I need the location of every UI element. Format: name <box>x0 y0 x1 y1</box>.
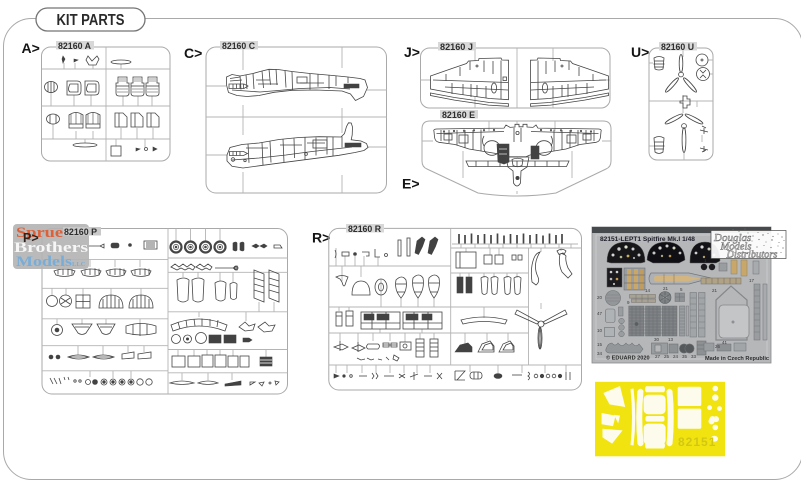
svg-text:LLC: LLC <box>72 261 86 268</box>
svg-text:82160 C: 82160 C <box>222 41 255 51</box>
svg-text:82160 A: 82160 A <box>58 41 91 51</box>
svg-text:15: 15 <box>597 342 603 347</box>
svg-text:24: 24 <box>673 354 679 359</box>
svg-text:41: 41 <box>722 340 728 345</box>
svg-text:Made in Czech Republic: Made in Czech Republic <box>705 356 769 362</box>
svg-text:30: 30 <box>654 337 660 342</box>
svg-text:© EDUARD 2020: © EDUARD 2020 <box>606 355 650 362</box>
svg-text:C>: C> <box>184 45 202 61</box>
svg-text:82151: 82151 <box>678 435 716 449</box>
svg-text:17: 17 <box>749 278 755 283</box>
svg-text:82160 R: 82160 R <box>348 224 381 234</box>
svg-text:35: 35 <box>682 354 688 359</box>
svg-text:21: 21 <box>663 286 669 291</box>
svg-text:33: 33 <box>691 354 697 359</box>
svg-text:27: 27 <box>655 354 661 359</box>
svg-text:E>: E> <box>402 176 420 192</box>
svg-text:J>: J> <box>404 44 420 60</box>
svg-text:13: 13 <box>668 337 674 342</box>
svg-text:A>: A> <box>22 40 40 56</box>
svg-text:47: 47 <box>597 311 603 316</box>
svg-text:Models: Models <box>16 254 72 270</box>
svg-text:82160 U: 82160 U <box>661 42 694 52</box>
svg-text:21: 21 <box>712 288 718 293</box>
svg-text:Distributors: Distributors <box>726 250 778 261</box>
svg-text:14: 14 <box>645 288 651 293</box>
svg-text:82160 J: 82160 J <box>440 42 473 52</box>
svg-text:20: 20 <box>597 295 603 300</box>
svg-text:34: 34 <box>597 351 603 356</box>
svg-text:U>: U> <box>631 44 649 60</box>
svg-text:KIT PARTS: KIT PARTS <box>57 12 125 29</box>
svg-text:82151-LEPT1 Spitfire Mk.I 1/: 82151-LEPT1 Spitfire Mk.I 1/48 <box>600 236 695 243</box>
svg-text:R>: R> <box>312 230 330 246</box>
svg-text:82160 E: 82160 E <box>442 110 475 120</box>
svg-text:82160 P: 82160 P <box>64 227 97 237</box>
svg-text:26: 26 <box>715 344 721 349</box>
svg-text:P>: P> <box>23 231 39 245</box>
svg-text:10: 10 <box>597 328 603 333</box>
svg-text:25: 25 <box>664 354 670 359</box>
